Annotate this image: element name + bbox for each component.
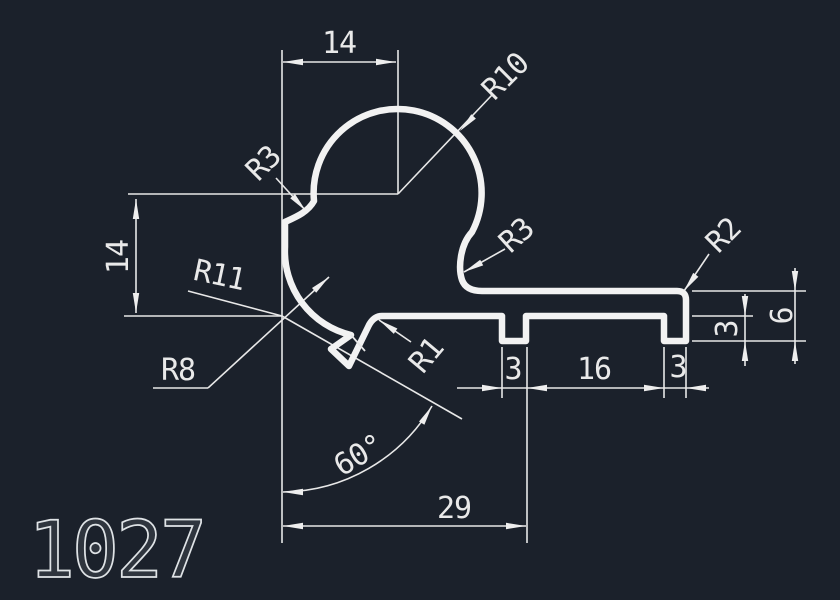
arrow-3right-top bbox=[742, 296, 748, 316]
cad-canvas: 14 14 3 16 3 3 6 60° 29 R3 R10 R3 R2 R11… bbox=[0, 0, 840, 600]
arrow-r10 bbox=[460, 114, 476, 131]
arrow-16-right bbox=[644, 385, 664, 391]
dim-text-slot2-width: 3 bbox=[669, 353, 686, 383]
dim-text-slot-spacing: 16 bbox=[577, 355, 611, 385]
profile bbox=[285, 109, 686, 366]
part-number: 1027 bbox=[28, 512, 204, 590]
arrow-14top-left bbox=[283, 59, 303, 65]
arrow-r8 bbox=[312, 277, 329, 293]
dim-text-tab-height: 3 bbox=[713, 320, 743, 337]
arrow-29-left bbox=[283, 523, 303, 529]
arrow-6-bottom bbox=[792, 341, 798, 361]
arrow-60arc-bottom bbox=[283, 489, 303, 495]
profile-outline bbox=[285, 109, 686, 366]
dim-text-slot1-width: 3 bbox=[504, 355, 521, 385]
arrow-14left-down bbox=[133, 293, 139, 313]
radius-text-r8: R8 bbox=[161, 356, 195, 386]
arrow-slot2-right bbox=[686, 385, 706, 391]
arrow-r3-right bbox=[464, 260, 483, 272]
arrow-slot1-right bbox=[527, 385, 547, 391]
arrow-r2 bbox=[684, 273, 698, 291]
arrow-slot1-left bbox=[482, 385, 502, 391]
dim-text-left-height: 14 bbox=[104, 240, 134, 274]
arrow-14top-right bbox=[376, 59, 396, 65]
dim-text-top-width: 14 bbox=[322, 29, 356, 59]
arrow-14left-up bbox=[133, 199, 139, 219]
arrow-r1 bbox=[379, 320, 397, 334]
arrow-60arc-top bbox=[419, 406, 432, 425]
arrow-29-right bbox=[506, 523, 526, 529]
dim-text-right-height: 6 bbox=[768, 307, 798, 324]
arrow-6-top bbox=[792, 271, 798, 291]
arrow-3right-bottom bbox=[742, 341, 748, 361]
dim-text-base-width: 29 bbox=[437, 494, 471, 524]
